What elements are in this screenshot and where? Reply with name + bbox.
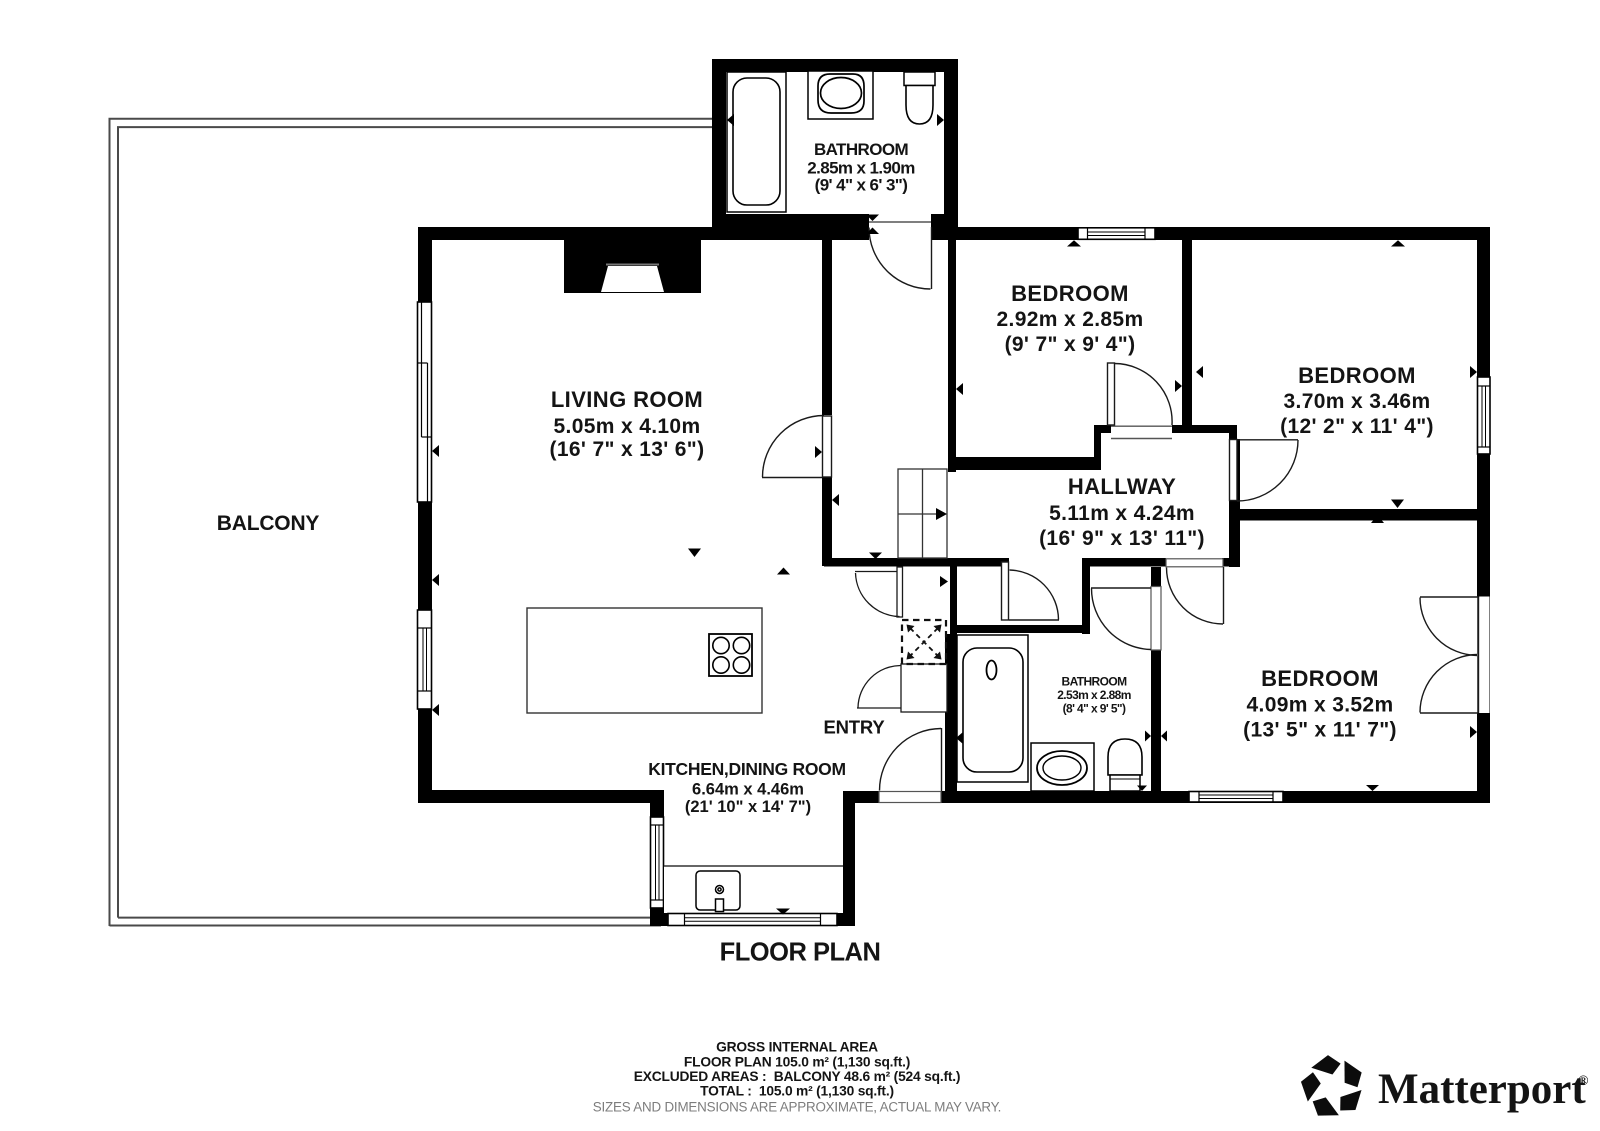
svg-text:ENTRY: ENTRY bbox=[823, 717, 885, 738]
svg-text:BEDROOM: BEDROOM bbox=[1261, 666, 1379, 691]
svg-text:Matterport: Matterport bbox=[1378, 1066, 1586, 1113]
svg-text:SIZES AND DIMENSIONS ARE APPRO: SIZES AND DIMENSIONS ARE APPROXIMATE, AC… bbox=[593, 1100, 1001, 1115]
svg-text:(21' 10" x 14' 7"): (21' 10" x 14' 7") bbox=[685, 798, 811, 816]
svg-text:BATHROOM: BATHROOM bbox=[814, 140, 908, 159]
svg-text:BEDROOM: BEDROOM bbox=[1298, 363, 1416, 388]
svg-text:5.05m x 4.10m: 5.05m x 4.10m bbox=[554, 415, 701, 438]
svg-text:2.53m x 2.88m: 2.53m x 2.88m bbox=[1057, 688, 1131, 702]
svg-text:EXCLUDED AREAS : BALCONY 48.6: EXCLUDED AREAS : BALCONY 48.6 m² (524 sq… bbox=[634, 1069, 961, 1084]
svg-text:(12' 2" x 11' 4"): (12' 2" x 11' 4") bbox=[1280, 415, 1434, 438]
svg-text:KITCHEN,DINING ROOM: KITCHEN,DINING ROOM bbox=[648, 759, 846, 779]
svg-text:(16' 7" x 13' 6"): (16' 7" x 13' 6") bbox=[550, 438, 705, 461]
svg-text:BEDROOM: BEDROOM bbox=[1011, 281, 1129, 306]
svg-text:TOTAL : 105.0 m² (1,130 sq.ft: TOTAL : 105.0 m² (1,130 sq.ft.) bbox=[700, 1084, 894, 1099]
svg-text:(16' 9" x 13' 11"): (16' 9" x 13' 11") bbox=[1039, 527, 1205, 550]
svg-text:(9' 4" x 6' 3"): (9' 4" x 6' 3") bbox=[815, 176, 908, 195]
svg-text:2.92m x 2.85m: 2.92m x 2.85m bbox=[997, 308, 1144, 331]
svg-text:BATHROOM: BATHROOM bbox=[1062, 675, 1128, 689]
svg-text:(13' 5" x 11' 7"): (13' 5" x 11' 7") bbox=[1243, 719, 1397, 742]
svg-text:(9' 7" x 9' 4"): (9' 7" x 9' 4") bbox=[1005, 333, 1136, 356]
svg-text:BALCONY: BALCONY bbox=[217, 512, 320, 535]
svg-text:6.64m x 4.46m: 6.64m x 4.46m bbox=[692, 781, 804, 799]
svg-text:HALLWAY: HALLWAY bbox=[1068, 474, 1176, 499]
svg-text:GROSS INTERNAL AREA: GROSS INTERNAL AREA bbox=[716, 1040, 878, 1055]
svg-text:LIVING ROOM: LIVING ROOM bbox=[551, 387, 703, 412]
svg-text:(8' 4" x 9' 5"): (8' 4" x 9' 5") bbox=[1063, 702, 1126, 716]
svg-text:FLOOR PLAN 105.0 m² (1,130 sq.: FLOOR PLAN 105.0 m² (1,130 sq.ft.) bbox=[684, 1055, 910, 1070]
svg-text:4.09m x 3.52m: 4.09m x 3.52m bbox=[1247, 694, 1394, 717]
svg-text:FLOOR PLAN: FLOOR PLAN bbox=[720, 939, 881, 967]
svg-text:3.70m x 3.46m: 3.70m x 3.46m bbox=[1284, 390, 1431, 413]
svg-text:®: ® bbox=[1578, 1074, 1589, 1089]
svg-text:5.11m x 4.24m: 5.11m x 4.24m bbox=[1049, 502, 1195, 525]
